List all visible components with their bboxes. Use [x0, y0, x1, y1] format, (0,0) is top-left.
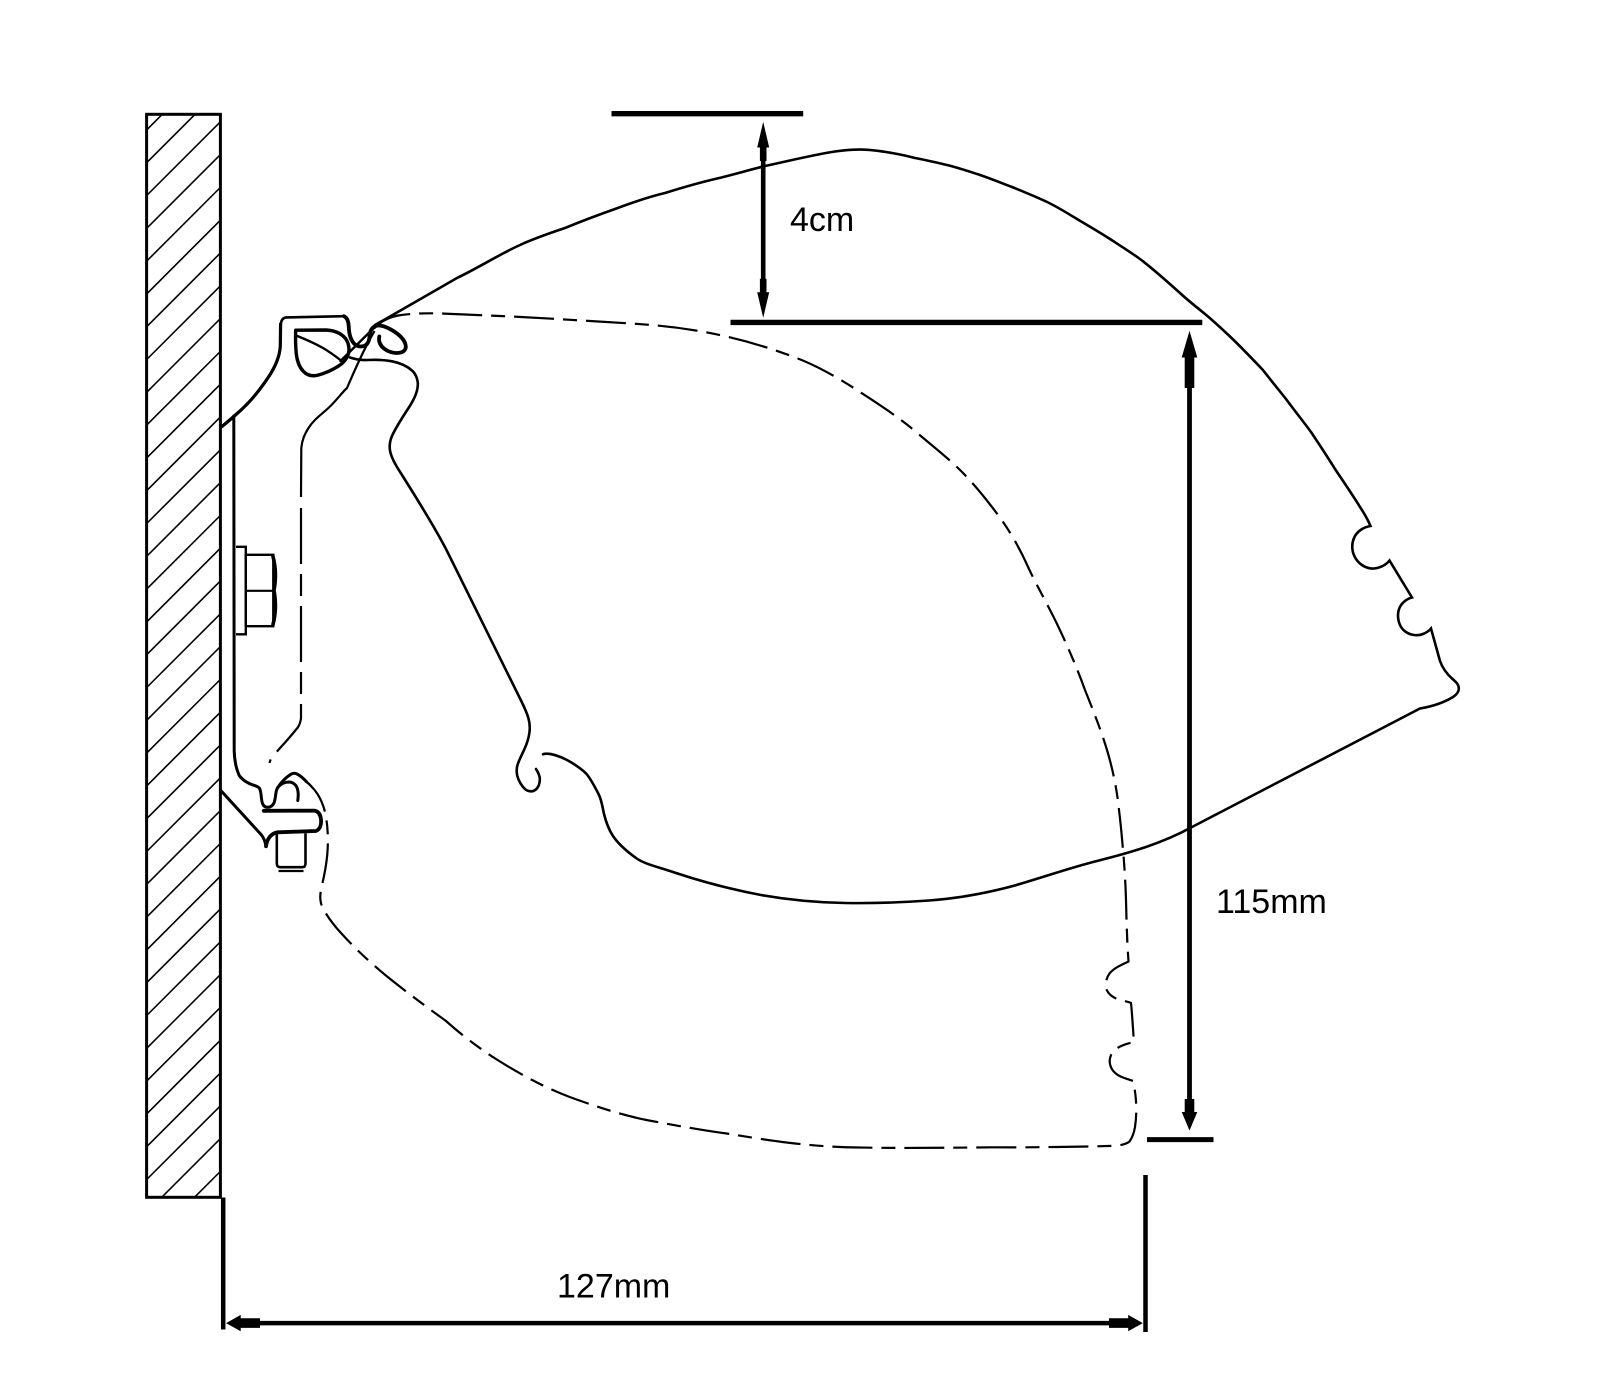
svg-text:127mm: 127mm [557, 1268, 670, 1306]
svg-text:4cm: 4cm [790, 201, 854, 239]
svg-text:115mm: 115mm [1216, 883, 1327, 921]
